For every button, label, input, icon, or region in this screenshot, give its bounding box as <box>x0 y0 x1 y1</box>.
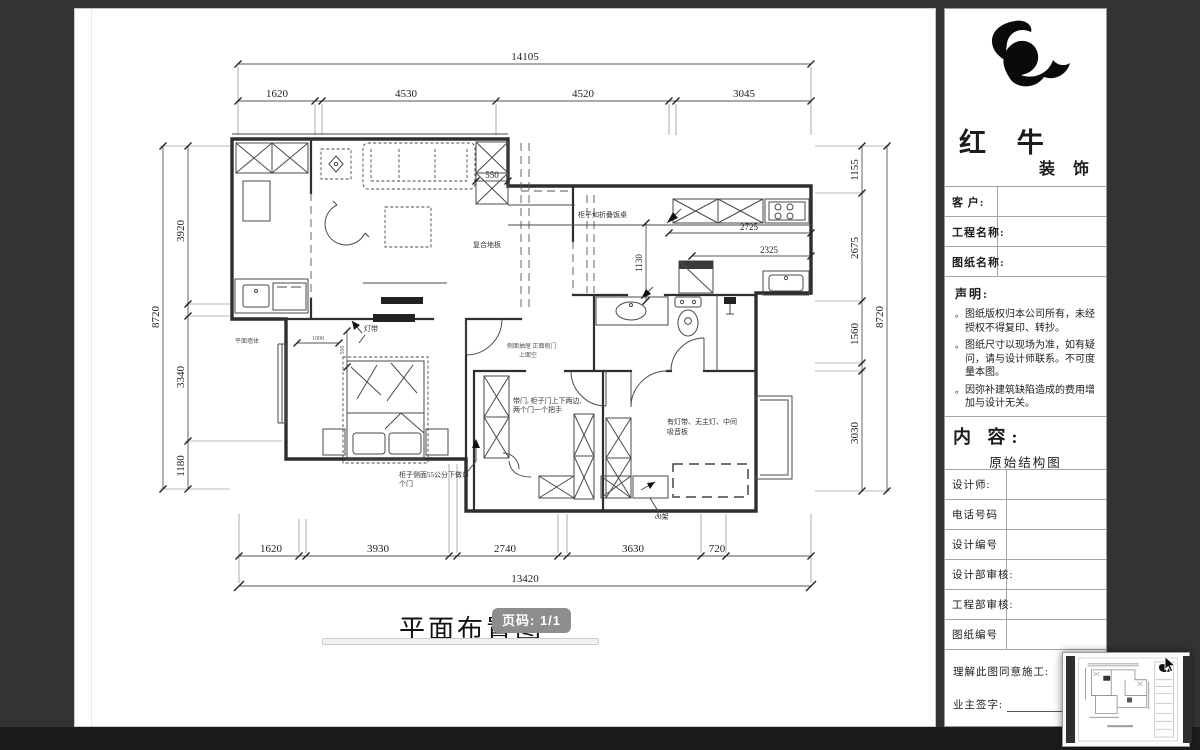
light-strip-note: 灯带 <box>364 324 378 333</box>
dim-bottom-2: 3930 <box>367 543 390 555</box>
dim-left-overall: 8720 <box>150 306 162 329</box>
dim-bottom-3: 2740 <box>494 543 517 555</box>
dim-bottom-4: 3630 <box>622 543 645 555</box>
project-name-label: 工程名称: <box>945 217 998 246</box>
dim-closet-550: 550 <box>485 170 499 180</box>
dim-right-3: 1560 <box>849 323 861 346</box>
bedroom-note-line1: 有灯带、无主灯、中间 <box>667 417 737 426</box>
title-underline <box>322 638 599 645</box>
study-room: 带门, 柜子门上下两边, 两个门一个把手 <box>484 376 594 499</box>
drawer-note-line2: 上面空 <box>519 351 537 359</box>
thumbnail-side-bar <box>1183 656 1192 743</box>
field-rows: 设计师: 电话号码 设计编号 设计部审核: 工程部审核: 图纸编号 <box>945 470 1106 650</box>
statement-item-text: 图纸版权归本公司所有，未经授权不得复印、转抄。 <box>965 308 1100 335</box>
dim-bed-500: 500 <box>340 346 346 355</box>
thumbnail-side-bar <box>1066 656 1075 743</box>
drawing-name-label: 图纸名称: <box>945 247 998 276</box>
dim-bottom-1: 1620 <box>260 543 283 555</box>
drawing-no-label: 图纸编号 <box>945 620 1007 649</box>
floor-material-label: 复合地板 <box>473 240 501 249</box>
dimension-chain-top: 14105 1620 4530 4520 3045 <box>235 51 815 135</box>
living-room-furniture: 复合地板 <box>321 143 501 322</box>
title-block-panel: 红 牛 装 饰 客 户: 工程名称: 图纸名称: 声明: 。 图纸版权归本公司所… <box>944 8 1107 727</box>
dim-top-1: 1620 <box>266 88 289 100</box>
owner-signature-label: 业主签字: <box>953 697 1003 712</box>
dim-right-1: 1155 <box>849 159 861 181</box>
client-value <box>998 187 1106 216</box>
content-section: 内 容: 原始结构图 <box>945 417 1106 470</box>
kitchen: 柜子如折叠饭桌 2725 2325 1130 <box>508 199 815 305</box>
dim-kitchen-2725: 2725 <box>740 222 759 232</box>
brand-name-sub: 装 饰 <box>1039 155 1096 179</box>
statement-item: 。 图纸尺寸以现场为准，如有疑问，请与设计师联系。不可度量本图。 <box>955 339 1100 380</box>
dim-bottom-5: 720 <box>709 543 726 555</box>
dim-top-overall: 14105 <box>511 51 539 63</box>
statement-item-text: 因弥补建筑缺陷造成的费用增加与设计无关。 <box>965 384 1100 411</box>
content-label: 内 容: <box>953 423 1098 449</box>
design-no-label: 设计编号 <box>945 530 1007 559</box>
designer-label: 设计师: <box>945 470 1007 499</box>
dim-bottom-overall: 13420 <box>511 573 539 585</box>
designer-value <box>1007 470 1106 499</box>
brand-logo-box: 红 牛 装 饰 <box>945 9 1106 187</box>
bullet: 。 <box>955 339 965 380</box>
client-row: 客 户: <box>945 187 1106 217</box>
project-name-row: 工程名称: <box>945 217 1106 247</box>
entry-closet: 550 <box>473 142 512 204</box>
phone-value <box>1007 500 1106 529</box>
corridor-notes: 侧面抽屉 正面假门 上面空 <box>507 342 557 359</box>
bedroom-right: 有灯带、无主灯、中间 吸音板 <box>606 396 792 498</box>
wardrobe-note-line2: 两个门一个把手 <box>513 405 562 414</box>
bullet: 。 <box>955 308 965 335</box>
dim-top-2: 4530 <box>395 88 418 100</box>
dim-left-2: 3340 <box>175 366 187 389</box>
bedroom-left: 灯带 1000 500 平面墙体 柜子侧面55公分下做单 个门 <box>235 321 480 488</box>
cabinet-note-line2: 个门 <box>399 479 413 488</box>
dimension-chain-bottom: 1620 3930 2740 3630 720 13420 <box>234 464 816 591</box>
dim-kitchen-2325: 2325 <box>760 245 779 255</box>
dim-left-3: 1180 <box>175 455 187 477</box>
content-value: 原始结构图 <box>953 452 1098 471</box>
dimension-chain-right: 1155 2675 1560 3030 8720 <box>815 143 891 495</box>
wall-note: 平面墙体 <box>235 337 259 345</box>
dim-top-4: 3045 <box>733 88 756 100</box>
design-audit-label: 设计部审核: <box>945 560 1007 589</box>
page-number-badge: 页码: 1/1 <box>492 608 571 633</box>
engineering-audit-value <box>1007 590 1106 619</box>
statement-section: 声明: 。 图纸版权归本公司所有，未经授权不得复印、转抄。 。 图纸尺寸以现场为… <box>945 277 1106 417</box>
drawing-no-value <box>1007 620 1106 649</box>
balcony-cabinets <box>235 143 308 313</box>
drawing-name-row: 图纸名称: <box>945 247 1106 277</box>
dim-right-4: 3030 <box>849 422 861 445</box>
dim-top-3: 4520 <box>572 88 595 100</box>
dim-right-2: 2675 <box>849 237 861 260</box>
dim-left-1: 3920 <box>175 220 187 243</box>
statement-item-text: 图纸尺寸以现场为准，如有疑问，请与设计师联系。不可度量本图。 <box>965 339 1100 380</box>
statement-title: 声明: <box>955 285 1100 302</box>
mouse-cursor-icon <box>1164 656 1178 673</box>
phone-label: 电话号码 <box>945 500 1007 529</box>
statement-item: 。 图纸版权归本公司所有，未经授权不得复印、转抄。 <box>955 308 1100 335</box>
statement-item: 。 因弥补建筑缺陷造成的费用增加与设计无关。 <box>955 384 1100 411</box>
project-name-value <box>998 217 1106 246</box>
drawer-note-line1: 侧面抽屉 正面假门 <box>507 342 557 350</box>
engineering-audit-label: 工程部审核: <box>945 590 1007 619</box>
wardrobe-note-line1: 带门, 柜子门上下两边, <box>513 396 581 405</box>
folding-table-note: 柜子如折叠饭桌 <box>578 210 627 219</box>
design-no-value <box>1007 530 1106 559</box>
cabinet-note-line1: 柜子侧面55公分下做单 <box>399 470 469 479</box>
dim-right-overall: 8720 <box>874 306 886 329</box>
design-audit-value <box>1007 560 1106 589</box>
dim-kitchen-1130: 1130 <box>634 254 644 272</box>
bathroom <box>596 297 736 336</box>
bedroom-note-line2: 吸音板 <box>667 427 688 436</box>
drawing-sheet: .w3{stroke:#2e2e2e;stroke-width:3.4;fill… <box>74 8 936 727</box>
drawing-name-value <box>998 247 1106 276</box>
bullet: 。 <box>955 384 965 411</box>
client-label: 客 户: <box>945 187 998 216</box>
cd-rack-label: cd架 <box>655 513 669 521</box>
dim-bed-1000: 1000 <box>312 336 324 342</box>
brand-logo-icon <box>973 19 1077 119</box>
door-swings <box>466 319 704 407</box>
bottom-band <box>0 727 1200 750</box>
